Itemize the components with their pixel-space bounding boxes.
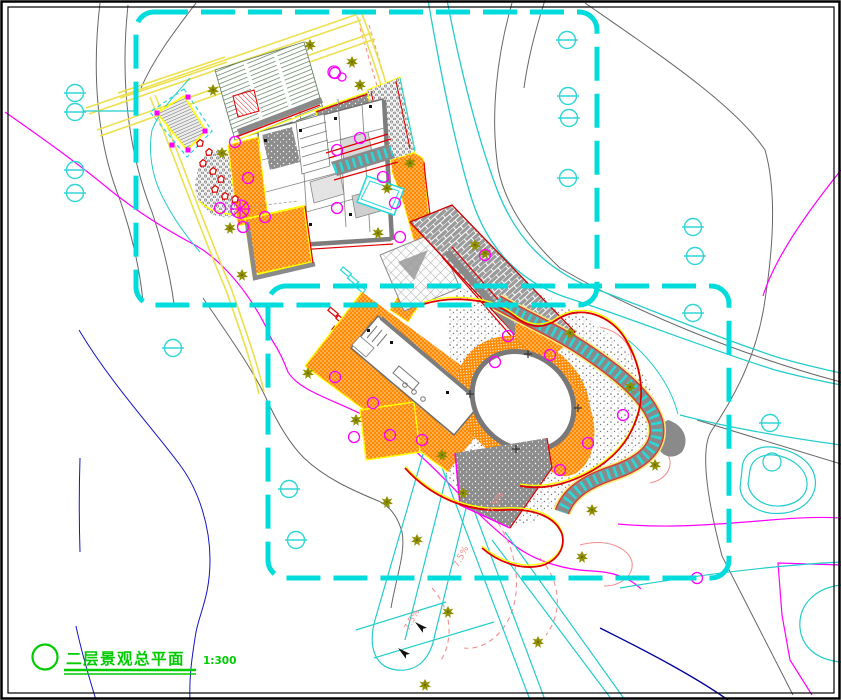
site-plan-drawing: 7.5%7.5%7.5% 二层景观总平面 1:300 (0, 0, 841, 700)
cad-viewport[interactable]: 7.5%7.5%7.5% 二层景观总平面 1:300 (0, 0, 841, 700)
corner-dot-icon (186, 148, 191, 153)
drawing-title: 二层景观总平面 (66, 649, 185, 668)
corner-dot-icon (155, 111, 160, 116)
corner-dot-icon (203, 129, 208, 134)
orange-paving-wing (360, 402, 420, 460)
stairwell (296, 114, 330, 174)
corner-dot-icon (186, 95, 191, 100)
drawing-scale: 1:300 (203, 655, 236, 667)
corner-dot-icon (170, 143, 175, 148)
